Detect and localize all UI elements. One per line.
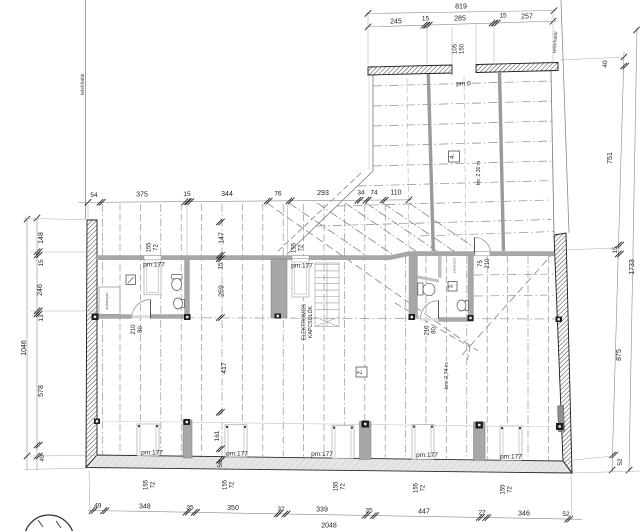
svg-text:147: 147 — [219, 232, 226, 244]
svg-text:105: 105 — [453, 43, 459, 54]
svg-text:15: 15 — [422, 16, 430, 23]
svg-text:155: 155 — [414, 482, 420, 493]
svg-text:49: 49 — [39, 454, 46, 462]
svg-text:417: 417 — [221, 362, 228, 374]
svg-text:751: 751 — [607, 152, 614, 164]
svg-text:293: 293 — [317, 190, 329, 197]
svg-text:76: 76 — [274, 190, 282, 197]
svg-text:3.: 3. — [449, 283, 455, 288]
svg-text:210: 210 — [425, 325, 431, 336]
svg-text:246: 246 — [37, 284, 44, 296]
svg-text:155: 155 — [223, 479, 229, 490]
svg-text:zuhanyzó: zuhanyzó — [453, 258, 457, 273]
svg-text:210: 210 — [485, 258, 491, 269]
svg-text:pm:0: pm:0 — [456, 81, 471, 88]
svg-text:155: 155 — [501, 484, 507, 495]
svg-text:pm:177: pm:177 — [226, 451, 248, 458]
svg-text:tm: 2,30 m: tm: 2,30 m — [476, 161, 482, 186]
svg-text:875: 875 — [616, 349, 623, 361]
svg-text:350: 350 — [227, 505, 239, 512]
svg-text:1046: 1046 — [21, 340, 28, 356]
svg-text:447: 447 — [418, 509, 430, 516]
svg-text:257: 257 — [521, 14, 533, 21]
svg-text:1733: 1733 — [629, 259, 636, 275]
svg-text:4.: 4. — [450, 154, 456, 159]
svg-text:pm:177: pm:177 — [141, 450, 163, 457]
svg-text:35: 35 — [365, 508, 373, 515]
svg-text:ELEKTROMOS: ELEKTROMOS — [302, 303, 308, 340]
svg-text:35: 35 — [186, 504, 194, 511]
svg-text:49: 49 — [94, 503, 102, 510]
svg-text:344: 344 — [221, 191, 233, 198]
svg-text:155: 155 — [147, 242, 153, 253]
svg-text:32: 32 — [277, 506, 285, 513]
svg-text:285: 285 — [454, 16, 466, 23]
svg-text:15: 15 — [499, 13, 507, 20]
svg-text:15: 15 — [218, 262, 225, 270]
svg-text:bm: 2,74 m: bm: 2,74 m — [444, 363, 450, 389]
svg-text:161: 161 — [214, 430, 221, 441]
svg-text:148: 148 — [38, 232, 45, 244]
svg-text:74: 74 — [370, 190, 378, 197]
svg-text:80: 80 — [138, 326, 144, 333]
svg-text:15: 15 — [38, 259, 45, 267]
svg-text:40: 40 — [602, 60, 609, 68]
svg-text:72: 72 — [421, 484, 427, 491]
svg-text:27: 27 — [478, 510, 486, 517]
svg-text:339: 339 — [316, 507, 328, 514]
svg-text:819: 819 — [455, 4, 467, 11]
svg-text:2.: 2. — [358, 369, 364, 374]
svg-text:155: 155 — [292, 242, 298, 253]
svg-text:72: 72 — [151, 481, 157, 488]
svg-text:2048: 2048 — [321, 523, 337, 530]
svg-text:578: 578 — [38, 385, 45, 397]
svg-text:pm:177: pm:177 — [291, 263, 313, 270]
svg-text:pm:177: pm:177 — [143, 262, 165, 269]
svg-text:150: 150 — [460, 43, 466, 54]
svg-text:245: 245 — [390, 19, 402, 26]
svg-text:259: 259 — [219, 285, 226, 297]
svg-text:50: 50 — [217, 460, 224, 468]
svg-text:155: 155 — [334, 481, 340, 492]
svg-text:KAPCSOLÓK: KAPCSOLÓK — [307, 305, 314, 338]
svg-text:pm:177: pm:177 — [416, 452, 438, 459]
svg-text:72: 72 — [299, 244, 305, 251]
svg-text:375: 375 — [136, 192, 148, 199]
svg-text:15: 15 — [612, 246, 619, 254]
svg-text:348: 348 — [139, 504, 151, 511]
svg-text:52: 52 — [617, 458, 624, 466]
svg-text:72: 72 — [508, 486, 514, 493]
svg-text:72: 72 — [341, 483, 347, 490]
svg-text:110: 110 — [390, 190, 401, 197]
svg-text:75: 75 — [478, 260, 484, 267]
svg-text:pm:177: pm:177 — [500, 454, 522, 461]
svg-text:72: 72 — [154, 244, 160, 251]
svg-text:155: 155 — [144, 479, 150, 490]
svg-text:54: 54 — [90, 192, 98, 199]
svg-text:80: 80 — [432, 327, 438, 334]
svg-text:15: 15 — [183, 191, 191, 198]
svg-text:pm:177: pm:177 — [311, 451, 333, 458]
svg-text:telekhatár: telekhatár — [80, 73, 86, 95]
svg-text:zuhanyzó: zuhanyzó — [104, 292, 109, 310]
svg-text:210: 210 — [131, 324, 137, 335]
svg-text:52: 52 — [562, 511, 570, 518]
svg-text:13: 13 — [38, 314, 45, 322]
svg-text:346: 346 — [518, 510, 530, 517]
svg-text:72: 72 — [230, 481, 236, 488]
svg-text:34: 34 — [357, 190, 365, 197]
